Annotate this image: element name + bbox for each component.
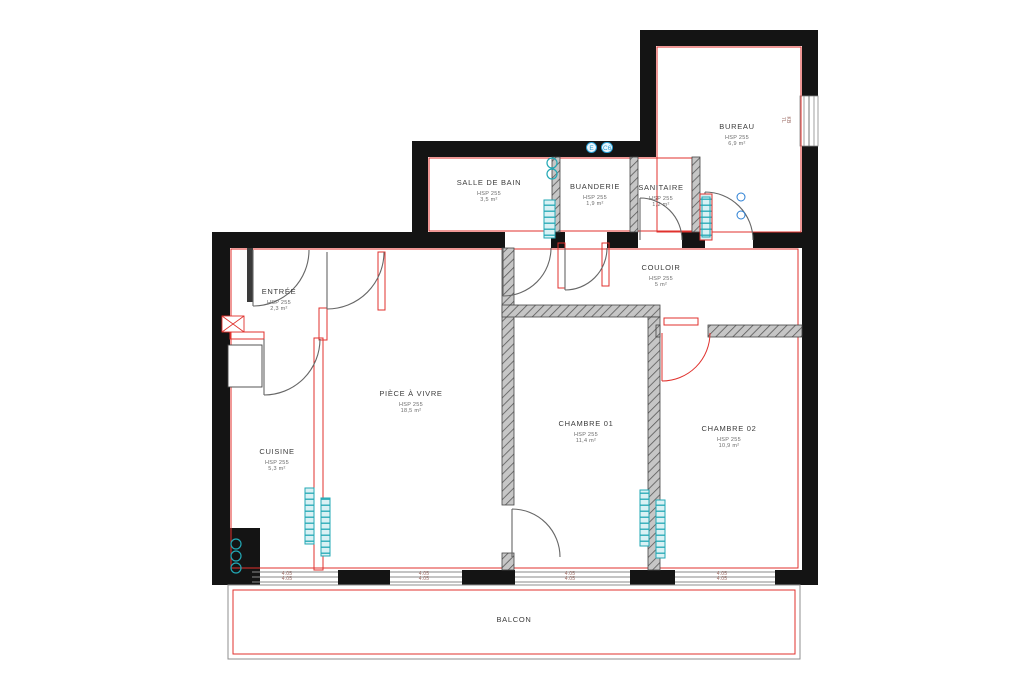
window-tag: 4.05 4.05 bbox=[717, 572, 728, 582]
window-tag: 4.05 4.05 bbox=[282, 572, 293, 582]
floorplan-drawing bbox=[0, 0, 1024, 683]
floorplan-page: BUREAU HSP 255 6,9 m² SALLE DE BAIN HSP … bbox=[0, 0, 1024, 683]
electric-badge-e: E bbox=[586, 142, 597, 153]
bureau-window bbox=[800, 96, 818, 146]
chambre02-door-swing bbox=[662, 333, 710, 381]
window-tag: 4.05 4.05 bbox=[565, 572, 576, 582]
balcony-outline bbox=[228, 585, 800, 659]
window-tag: 4.05 4.05 bbox=[419, 572, 430, 582]
window-tag-right: KB 7L bbox=[780, 116, 790, 123]
